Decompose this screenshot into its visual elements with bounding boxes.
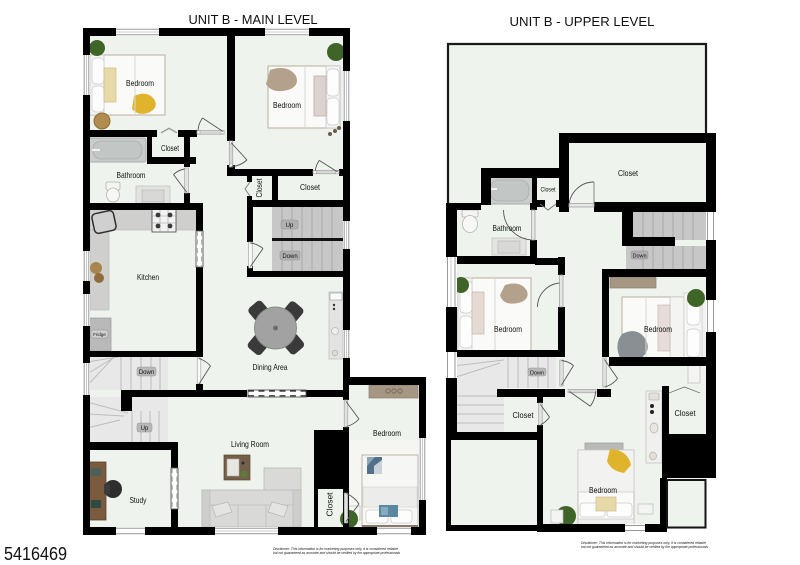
svg-text:Closet: Closet <box>618 168 639 178</box>
svg-text:UNIT B - MAIN LEVEL: UNIT B - MAIN LEVEL <box>189 12 318 27</box>
svg-text:Closet: Closet <box>300 182 321 192</box>
svg-text:Closet: Closet <box>325 492 335 517</box>
svg-text:Bedroom: Bedroom <box>273 100 301 110</box>
svg-text:Down: Down <box>282 254 297 260</box>
svg-text:Study: Study <box>130 495 148 505</box>
svg-text:Down: Down <box>530 371 544 377</box>
svg-text:but not guaranteed as accurate: but not guaranteed as accurate and shoul… <box>273 551 400 555</box>
svg-text:Bathroom: Bathroom <box>493 223 522 233</box>
svg-text:5416469: 5416469 <box>4 543 67 564</box>
svg-text:Closet: Closet <box>513 410 535 420</box>
svg-text:Up: Up <box>141 426 149 432</box>
svg-text:Fridge: Fridge <box>93 332 106 337</box>
svg-text:Bedroom: Bedroom <box>373 428 401 438</box>
svg-text:Bathroom: Bathroom <box>117 170 146 180</box>
svg-text:Bedroom: Bedroom <box>126 78 154 88</box>
svg-text:UNIT B - UPPER LEVEL: UNIT B - UPPER LEVEL <box>510 14 655 29</box>
svg-text:Kitchen: Kitchen <box>137 272 159 282</box>
svg-text:Up: Up <box>286 223 294 229</box>
svg-text:Bedroom: Bedroom <box>589 485 617 495</box>
svg-text:Down: Down <box>139 370 154 376</box>
svg-text:Bedroom: Bedroom <box>494 324 522 334</box>
svg-text:Closet: Closet <box>675 408 697 418</box>
svg-text:Bedroom: Bedroom <box>644 324 672 334</box>
svg-text:Down: Down <box>632 254 646 260</box>
svg-text:but not guaranteed as accurate: but not guaranteed as accurate and shoul… <box>581 545 708 549</box>
svg-text:Closet: Closet <box>255 178 264 198</box>
svg-text:Closet: Closet <box>541 187 556 194</box>
svg-text:Dining Area: Dining Area <box>253 362 288 372</box>
svg-text:Closet: Closet <box>161 144 180 153</box>
svg-text:Living Room: Living Room <box>231 439 269 449</box>
